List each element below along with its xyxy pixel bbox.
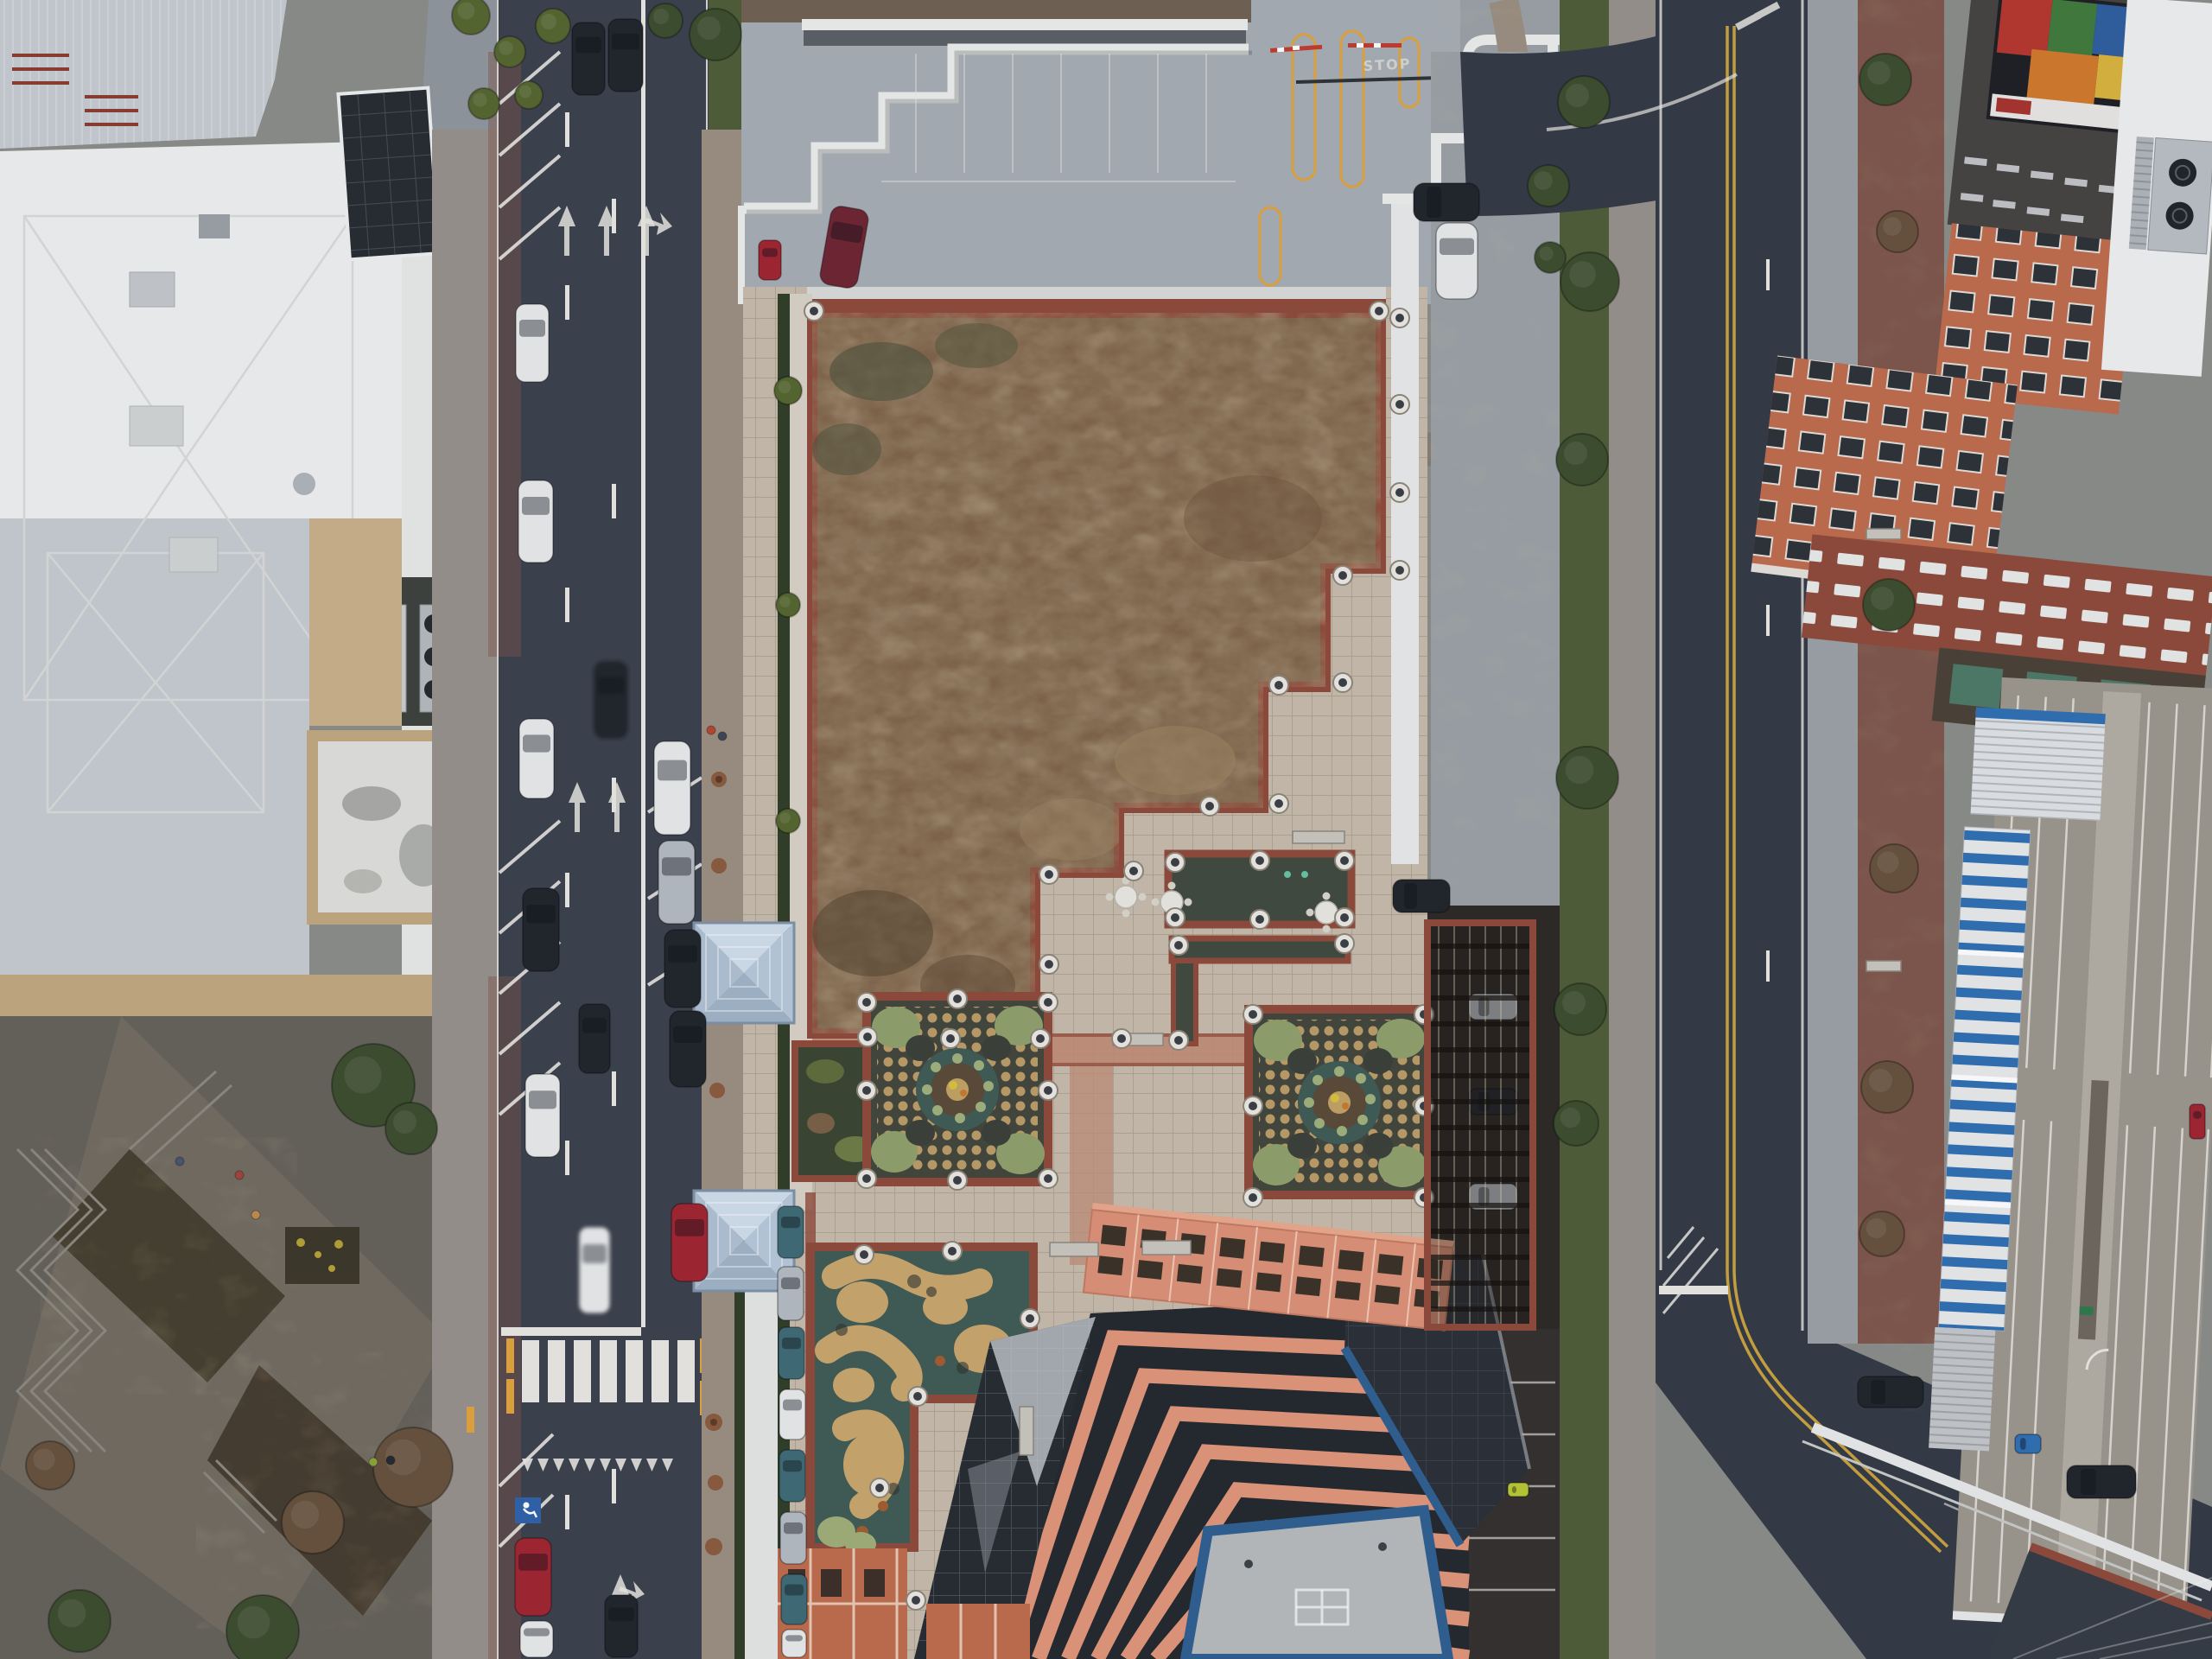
dusk-haze [0, 0, 2212, 1659]
aerial-photo: STOP [0, 0, 2212, 1659]
aerial-scene-svg: STOP [0, 0, 2212, 1659]
